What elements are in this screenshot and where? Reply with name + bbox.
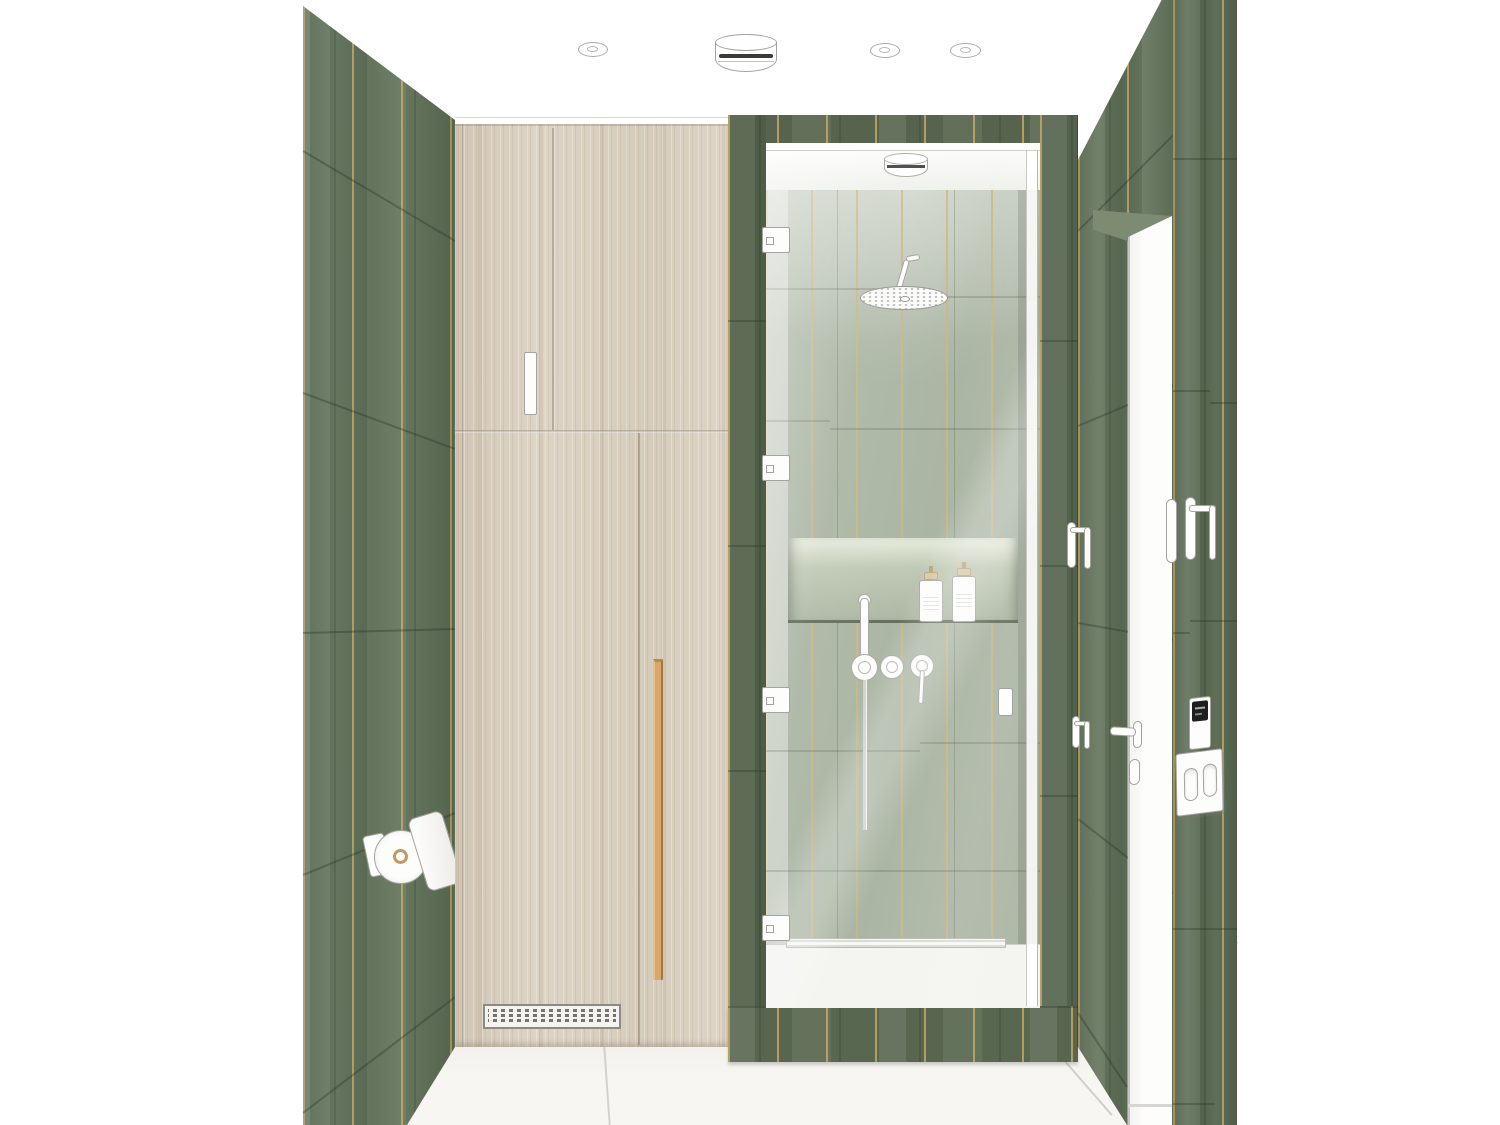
glass-door-hinge (762, 687, 790, 713)
drum-top (715, 34, 777, 51)
hinge-tab (766, 925, 774, 933)
glass-door-knob[interactable] (998, 688, 1013, 716)
tile-seam (728, 770, 766, 772)
glass-door-panel[interactable] (766, 148, 1040, 1008)
glass-door-edge (1026, 148, 1038, 1006)
left-wall-tiles (303, 0, 455, 1125)
cabinet-handle[interactable] (524, 352, 537, 415)
towel-hook[interactable] (1072, 716, 1094, 750)
switch-rocker[interactable] (1184, 767, 1199, 802)
vent-grille (483, 1004, 621, 1029)
upper-doors-joint (552, 128, 554, 430)
tile-seam (728, 545, 766, 547)
ceiling-spotlight-icon (950, 43, 981, 58)
shower-frame-top-beam (728, 115, 1078, 145)
toilet-paper-core (393, 849, 408, 864)
tile-seam (1173, 928, 1237, 930)
wall-keypad[interactable] (1189, 696, 1211, 750)
tile-seam (1210, 402, 1237, 404)
shower-interior (766, 143, 1040, 1008)
shower-frame-right-column (1040, 115, 1078, 1062)
hook-drop (1084, 527, 1091, 569)
tile-seam (1040, 340, 1078, 342)
bathroom-rendering (0, 0, 1500, 1125)
tile-seam (1173, 632, 1190, 634)
spotlight-inner (960, 47, 971, 53)
tile-seam (1040, 795, 1078, 797)
tile-seam (1173, 158, 1237, 160)
left-wall-tone (303, 0, 455, 1125)
hook-drop (1084, 721, 1090, 749)
switch-rocker[interactable] (1203, 763, 1218, 798)
tile-seam (1173, 1103, 1215, 1105)
glass-door-hinge (762, 227, 790, 253)
storage-cabinet (455, 124, 728, 1047)
glass-door-hinge (762, 455, 790, 481)
drum-band-line (718, 61, 774, 62)
cabinet-top-edge (455, 124, 728, 126)
door-lever-handle[interactable] (1110, 726, 1136, 736)
ceiling-spotlight-icon (870, 43, 900, 58)
cabinet-left-stile-joint (462, 124, 463, 1047)
towel-hook-pair[interactable] (1166, 497, 1218, 563)
wall-corner-line (1077, 115, 1078, 1047)
keypad-screen-digits (1195, 713, 1202, 716)
light-switch-plate[interactable] (1175, 748, 1223, 817)
hinge-tab (766, 697, 774, 705)
spotlight-inner (879, 47, 890, 53)
door-jamb-gap (1128, 234, 1130, 1125)
glass-top-edge (766, 148, 1040, 151)
shower-curb (728, 1006, 1078, 1062)
lower-doors-joint (638, 433, 640, 1045)
keypad-screen (1192, 700, 1208, 722)
door-threshold (1128, 1104, 1172, 1107)
glass-door-hinge (762, 915, 790, 941)
drum-band (719, 54, 773, 58)
ceiling-spotlight-icon (578, 42, 608, 57)
left-wall-edge-light (303, 0, 310, 1125)
cabinet-wood-pull[interactable] (653, 659, 663, 980)
towel-hook[interactable] (1067, 522, 1093, 570)
shower-frame-left-column (728, 115, 766, 1062)
cabinet-horizontal-joint (455, 430, 728, 433)
hook-drop (1209, 505, 1216, 560)
tile-seam (1190, 620, 1237, 622)
hinge-tab (766, 465, 774, 473)
hinge-tab (766, 237, 774, 245)
tile-seam (728, 320, 766, 322)
tile-seam (1173, 390, 1210, 392)
entry-door[interactable] (1128, 216, 1172, 1125)
ceiling-drum-light (715, 34, 777, 76)
door-lock-plate (1129, 758, 1140, 785)
hook-plate (1166, 499, 1177, 563)
keypad-screen-digits (1195, 706, 1205, 709)
spotlight-inner (587, 46, 598, 52)
